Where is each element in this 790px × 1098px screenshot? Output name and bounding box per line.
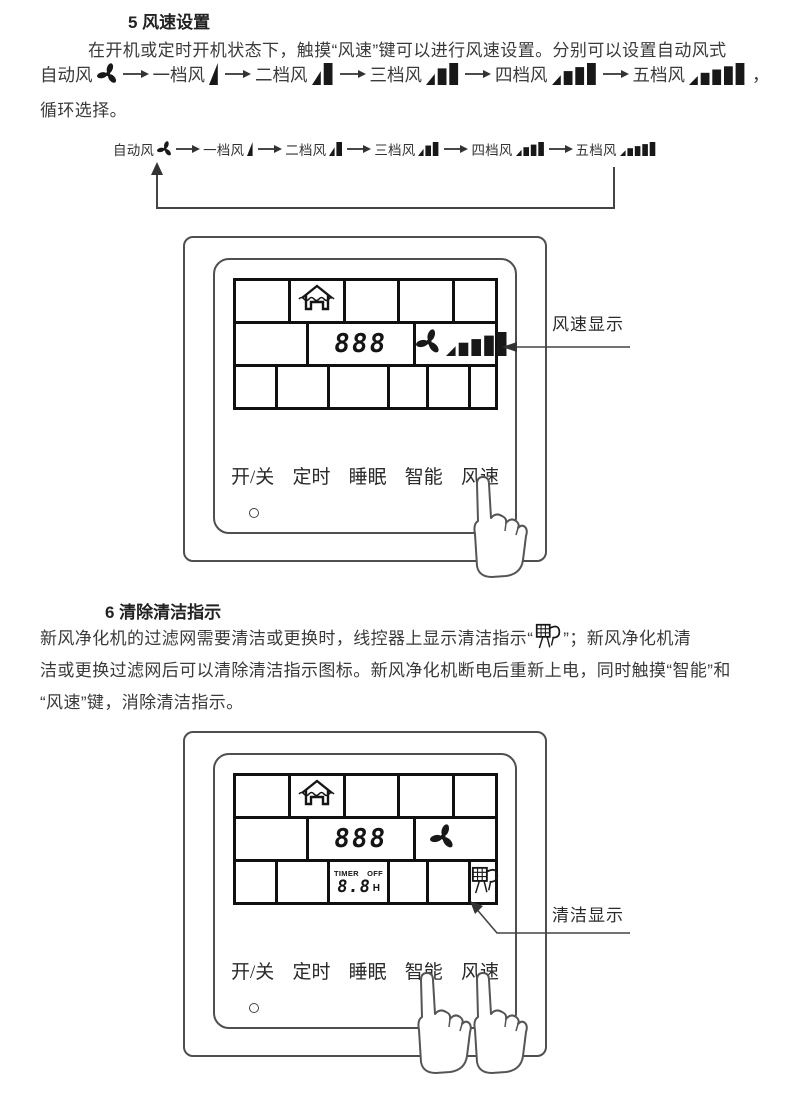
lcd-cell — [400, 281, 455, 321]
arrow-right-icon — [444, 144, 468, 154]
lcd-cell — [236, 862, 278, 902]
speed-bars-3-icon — [426, 63, 461, 85]
timer-display-cell: TIMER OFF 8.8 H — [330, 862, 390, 902]
speed-step-label: 一档风 — [153, 62, 206, 87]
touch-key-timer: 定时 — [292, 462, 330, 489]
section5-paragraph-line3: 循环选择。 — [40, 96, 127, 121]
speed-bars-5-icon — [620, 142, 658, 156]
section6-paragraph-line1: 新风净化机的过滤网需要清洁或更换时，线控器上显示清洁指示“ ”；新风净化机清 — [40, 622, 691, 650]
lcd-row-bottom: TIMER OFF 8.8 H — [236, 862, 495, 902]
lcd-cell — [455, 281, 495, 321]
indicator-led — [249, 1003, 259, 1013]
clean-filter-icon — [471, 865, 499, 900]
touch-key-timer: 定时 — [292, 957, 330, 984]
lcd-cell — [291, 281, 346, 321]
trailing-comma: ， — [752, 62, 770, 87]
arrow-right-icon — [465, 69, 491, 79]
speed-step-label: 三档风 — [374, 139, 415, 159]
lcd-cell — [330, 367, 390, 407]
section6-title: 6 清除清洁指示 — [105, 598, 221, 623]
fan-icon — [416, 329, 442, 360]
lcd-cell — [236, 819, 309, 859]
clean-display-callout-label: 清洁显示 — [552, 901, 624, 926]
lcd-row-top — [236, 776, 495, 819]
speed-bars-1-icon — [209, 63, 221, 85]
lcd-cell — [429, 367, 471, 407]
lcd-display-2: 888 TIMER OFF 8.8 H — [233, 773, 498, 905]
speed-step-label: 二档风 — [285, 139, 326, 159]
speed-bars-1-icon — [247, 142, 255, 156]
lcd-cell — [400, 776, 455, 816]
lcd-cell — [390, 367, 429, 407]
arrow-right-icon — [176, 144, 200, 154]
arrow-right-icon — [603, 69, 629, 79]
speed-display-bars-icon — [446, 332, 510, 356]
touch-key-power: 开/关 — [231, 957, 274, 984]
speed-step-label: 自动风 — [113, 139, 154, 159]
lcd-cell — [236, 324, 309, 364]
speed-step-label: 自动风 — [40, 62, 93, 87]
timer-digits: 8.8 — [336, 879, 372, 896]
speed-step-label: 五档风 — [576, 139, 617, 159]
lcd-cell — [236, 367, 278, 407]
touch-key-power: 开/关 — [231, 462, 274, 489]
fan-display-cell — [416, 819, 495, 859]
lcd-digits-cell: 888 — [309, 819, 416, 859]
lcd-display-1: 888 — [233, 278, 498, 410]
speed-step-label: 一档风 — [203, 139, 244, 159]
arrow-right-icon — [549, 144, 573, 154]
arrow-right-icon — [225, 69, 251, 79]
lcd-cell — [346, 776, 401, 816]
fan-icon — [430, 824, 456, 855]
fan-icon — [157, 141, 173, 157]
lcd-cell — [471, 367, 495, 407]
touch-key-smart: 智能 — [405, 462, 443, 489]
pointing-hand-speed2-icon — [454, 970, 532, 1081]
speed-step-label: 四档风 — [495, 62, 548, 87]
arrow-right-icon — [258, 144, 282, 154]
house-airflow-icon — [298, 283, 336, 320]
touch-key-sleep: 睡眠 — [349, 957, 387, 984]
arrow-right-icon — [123, 69, 149, 79]
speed-step-label: 五档风 — [633, 62, 686, 87]
cycle-loop-line — [157, 167, 614, 208]
speed-display-callout-label: 风速显示 — [552, 310, 624, 335]
fan-icon — [97, 63, 119, 85]
speed-bars-2-icon — [329, 142, 344, 156]
arrow-right-icon — [340, 69, 366, 79]
lcd-cell — [278, 862, 330, 902]
lcd-cell — [455, 776, 495, 816]
speed-step-label: 四档风 — [471, 139, 512, 159]
indicator-led — [249, 508, 259, 518]
seven-segment-digits: 888 — [333, 826, 389, 852]
lcd-row-middle: 888 — [236, 819, 495, 862]
lcd-digits-cell: 888 — [309, 324, 416, 364]
lcd-row-middle: 888 — [236, 324, 495, 367]
loop-arrowhead-icon — [151, 162, 163, 175]
lcd-cell — [278, 367, 330, 407]
fan-speed-display-cell — [416, 324, 510, 364]
lcd-cell — [236, 776, 291, 816]
section6-line1-pre: 新风净化机的过滤网需要清洁或更换时，线控器上显示清洁指示“ — [40, 624, 533, 649]
speed-bars-5-icon — [689, 63, 748, 85]
section6-line1-post: ”；新风净化机清 — [563, 624, 691, 649]
section5-title: 5 风速设置 — [128, 8, 210, 33]
house-airflow-icon — [298, 778, 336, 815]
speed-step-label: 三档风 — [370, 62, 423, 87]
lcd-cell — [346, 281, 401, 321]
manual-page: 5 风速设置 在开机或定时开机状态下，触摸“风速”键可以进行风速设置。分别可以设… — [0, 0, 790, 1098]
clean-filter-icon — [535, 622, 561, 650]
clean-indicator-cell — [471, 862, 499, 902]
section6-paragraph-line3: “风速”键，消除清洁指示。 — [40, 688, 244, 713]
speed-bars-4-icon — [552, 63, 599, 85]
lcd-cell — [291, 776, 346, 816]
speed-bars-3-icon — [418, 142, 441, 156]
lcd-cell — [390, 862, 429, 902]
lcd-row-top — [236, 281, 495, 324]
timer-unit: H — [373, 882, 380, 896]
touch-key-sleep: 睡眠 — [349, 462, 387, 489]
seven-segment-digits: 888 — [333, 331, 389, 357]
speed-bars-2-icon — [312, 63, 336, 85]
arrow-right-icon — [347, 144, 371, 154]
speed-sequence-text: 自动风 一档风 二档风 三档风 四档风 五档风 ， — [40, 58, 770, 90]
lcd-row-bottom — [236, 367, 495, 407]
pointing-hand-speed-icon — [454, 474, 532, 585]
speed-cycle-diagram: 自动风 一档风 二档风 三档风 四档风 五档风 — [113, 136, 658, 162]
speed-bars-4-icon — [516, 142, 546, 156]
lcd-cell — [236, 281, 291, 321]
lcd-cell — [429, 862, 471, 902]
speed-step-label: 二档风 — [255, 62, 308, 87]
section6-paragraph-line2: 洁或更换过滤网后可以清除清洁指示图标。新风净化机断电后重新上电，同时触摸“智能”… — [40, 656, 731, 681]
